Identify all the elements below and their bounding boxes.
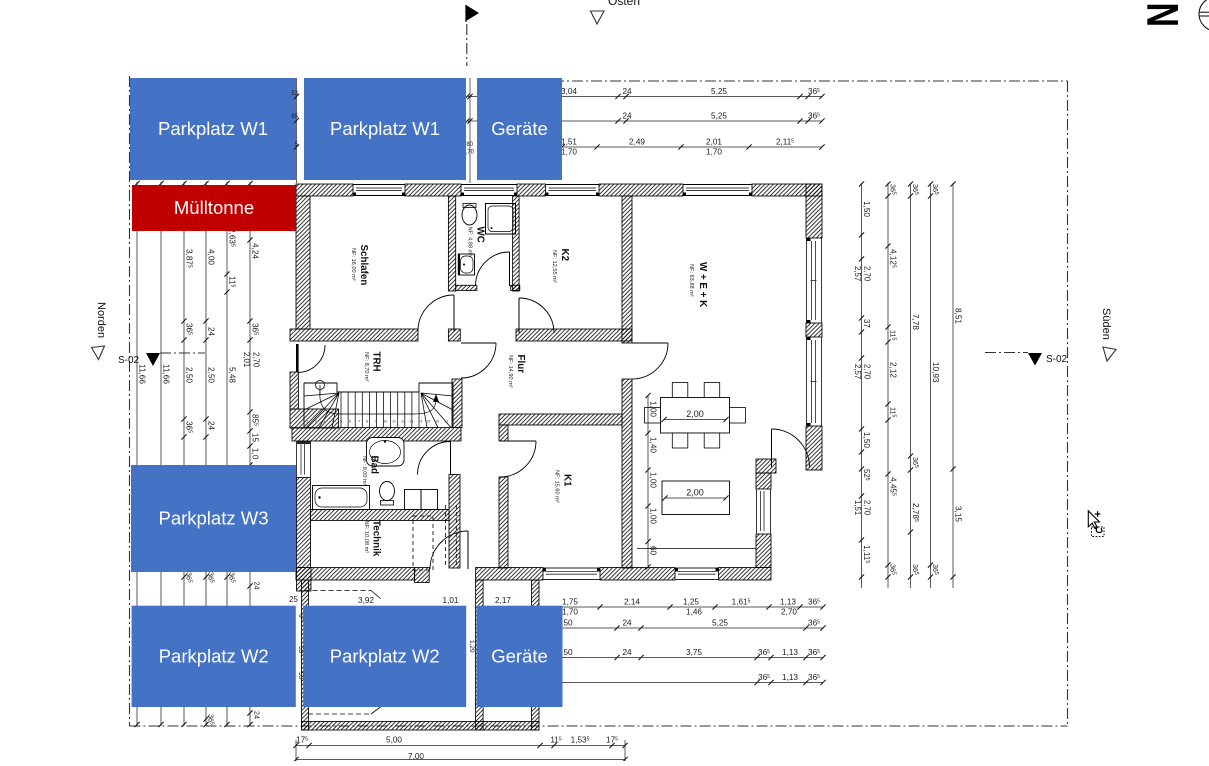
svg-text:2,50: 2,50 — [207, 367, 216, 383]
svg-text:8,51: 8,51 — [954, 308, 963, 324]
svg-text:2: 2 — [315, 419, 317, 424]
svg-text:11,66: 11,66 — [138, 364, 147, 384]
svg-text:5,25: 5,25 — [711, 87, 727, 96]
svg-text:2,49: 2,49 — [629, 138, 645, 147]
svg-text:24: 24 — [207, 421, 216, 431]
svg-text:5,00: 5,00 — [386, 736, 402, 745]
svg-text:1,70: 1,70 — [562, 608, 578, 617]
svg-text:NF: 16,00 m²: NF: 16,00 m² — [350, 248, 356, 281]
svg-text:1,70: 1,70 — [706, 148, 722, 157]
svg-text:NF: 9,00 m²: NF: 9,00 m² — [361, 456, 367, 486]
svg-text:53: 53 — [297, 672, 304, 680]
svg-text:NF: 63,88 m²: NF: 63,88 m² — [688, 264, 694, 297]
svg-text:1,00: 1,00 — [649, 401, 658, 417]
svg-text:2,57: 2,57 — [853, 364, 862, 379]
svg-text:1,51: 1,51 — [853, 500, 862, 515]
svg-text:1,29: 1,29 — [468, 640, 475, 653]
svg-text:2,01: 2,01 — [242, 352, 251, 367]
svg-text:9: 9 — [375, 419, 377, 424]
svg-text:W + E + K: W + E + K — [697, 262, 708, 307]
svg-text:Bad: Bad — [369, 456, 380, 475]
svg-text:1: 1 — [306, 419, 308, 424]
svg-text:NF: 15,60 m²: NF: 15,60 m² — [554, 470, 560, 503]
svg-text:2,14: 2,14 — [624, 598, 640, 607]
svg-text:3,15: 3,15 — [954, 506, 963, 522]
svg-text:1,25: 1,25 — [683, 598, 699, 607]
svg-text:2,70: 2,70 — [863, 364, 872, 380]
svg-text:WC: WC — [475, 227, 486, 243]
svg-text:24: 24 — [622, 619, 632, 628]
svg-text:Parkplatz W3: Parkplatz W3 — [158, 508, 268, 529]
svg-text:Geräte: Geräte — [491, 118, 548, 139]
svg-text:3,75: 3,75 — [686, 648, 702, 657]
svg-text:11,66: 11,66 — [162, 364, 171, 384]
svg-text:1,46: 1,46 — [686, 608, 702, 617]
svg-text:2,01: 2,01 — [706, 138, 722, 147]
svg-text:80: 80 — [466, 142, 473, 148]
svg-text:4,00: 4,00 — [207, 249, 216, 265]
svg-text:6: 6 — [349, 419, 351, 424]
svg-text:24: 24 — [622, 648, 632, 657]
svg-text:Technik: Technik — [371, 520, 382, 557]
svg-text:10,93: 10,93 — [931, 362, 940, 383]
svg-text:K2: K2 — [559, 249, 570, 262]
svg-text:Parkplatz W1: Parkplatz W1 — [158, 118, 268, 139]
svg-text:8: 8 — [366, 419, 368, 424]
svg-text:24: 24 — [253, 582, 262, 590]
svg-text:24: 24 — [622, 87, 632, 96]
svg-text:,70: ,70 — [466, 150, 475, 156]
svg-text:Norden: Norden — [95, 302, 107, 338]
svg-text:N: N — [1139, 2, 1188, 27]
svg-text:2,12: 2,12 — [889, 362, 898, 378]
svg-text:5,25: 5,25 — [712, 619, 728, 628]
svg-text:Schlafen: Schlafen — [358, 245, 369, 286]
svg-text:S-02: S-02 — [1046, 354, 1068, 365]
svg-text:3,92: 3,92 — [358, 596, 374, 605]
svg-text:11: 11 — [392, 419, 396, 424]
svg-text:53: 53 — [297, 646, 304, 654]
svg-text:16: 16 — [435, 419, 439, 424]
svg-text:NF: 8,70 m²: NF: 8,70 m² — [363, 352, 369, 382]
svg-text:25: 25 — [289, 595, 298, 604]
svg-text:3: 3 — [323, 419, 325, 424]
svg-text:50: 50 — [563, 648, 573, 657]
svg-text:1,00: 1,00 — [649, 472, 658, 488]
svg-text:2,70: 2,70 — [863, 266, 872, 282]
svg-text:13: 13 — [409, 419, 413, 424]
svg-text:7,78: 7,78 — [911, 314, 920, 330]
svg-text:NF: 12,55 m²: NF: 12,55 m² — [551, 250, 557, 283]
svg-text:NF: 4,88 m²: NF: 4,88 m² — [467, 227, 473, 257]
svg-text:2,70: 2,70 — [252, 352, 261, 368]
svg-text:1,51: 1,51 — [561, 138, 577, 147]
svg-text:2,17: 2,17 — [495, 596, 511, 605]
svg-text:5,48: 5,48 — [228, 367, 237, 383]
svg-text:K1: K1 — [562, 474, 573, 487]
svg-text:5,25: 5,25 — [711, 112, 727, 121]
svg-text:Parkplatz W1: Parkplatz W1 — [330, 118, 440, 139]
svg-text:1,13: 1,13 — [782, 673, 798, 682]
svg-text:1,40: 1,40 — [649, 437, 658, 453]
svg-text:TRH: TRH — [371, 352, 382, 372]
svg-text:1,75: 1,75 — [562, 598, 578, 607]
svg-text:Parkplatz W2: Parkplatz W2 — [330, 645, 440, 666]
svg-text:37: 37 — [862, 319, 871, 328]
svg-text:Osten: Osten — [608, 0, 640, 8]
svg-text:24: 24 — [207, 327, 216, 337]
svg-text:12: 12 — [401, 419, 405, 424]
svg-text:4,24: 4,24 — [251, 243, 260, 259]
svg-text:15: 15 — [251, 433, 260, 443]
svg-text:1,01: 1,01 — [443, 596, 459, 605]
svg-text:NF: 14,90 m²: NF: 14,90 m² — [507, 355, 513, 388]
svg-text:Mülltonne: Mülltonne — [174, 197, 254, 218]
svg-text:17: 17 — [444, 419, 448, 424]
svg-text:2,50: 2,50 — [185, 367, 194, 383]
svg-text:7: 7 — [358, 419, 360, 424]
svg-text:7,00: 7,00 — [408, 752, 424, 761]
svg-text:1,0: 1,0 — [251, 448, 260, 460]
svg-text:1,50: 1,50 — [862, 432, 871, 448]
svg-text:2,57: 2,57 — [853, 266, 862, 281]
svg-text:Süden: Süden — [1100, 308, 1112, 340]
svg-text:3,04: 3,04 — [561, 87, 577, 96]
svg-text:24: 24 — [253, 711, 262, 719]
svg-text:1,50: 1,50 — [862, 201, 871, 217]
svg-text:60: 60 — [649, 546, 658, 556]
svg-text:Geräte: Geräte — [491, 645, 548, 666]
svg-text:2,00: 2,00 — [686, 488, 704, 498]
svg-text:1,13: 1,13 — [782, 648, 798, 657]
svg-text:S-02: S-02 — [118, 355, 140, 366]
svg-text:1,00: 1,00 — [649, 508, 658, 524]
svg-text:50: 50 — [563, 619, 573, 628]
svg-text:15: 15 — [426, 419, 430, 424]
svg-text:24: 24 — [622, 112, 632, 121]
svg-text:1,13: 1,13 — [780, 598, 796, 607]
svg-text:5: 5 — [340, 419, 342, 424]
svg-text:Parkplatz W2: Parkplatz W2 — [159, 645, 269, 666]
svg-text:NF: 10,08 m²: NF: 10,08 m² — [363, 521, 369, 554]
svg-text:1,70: 1,70 — [561, 148, 577, 157]
svg-text:Flur: Flur — [515, 355, 526, 374]
svg-text:2,70: 2,70 — [781, 608, 797, 617]
svg-text:2,00: 2,00 — [686, 409, 704, 419]
svg-text:2,70: 2,70 — [863, 500, 872, 516]
